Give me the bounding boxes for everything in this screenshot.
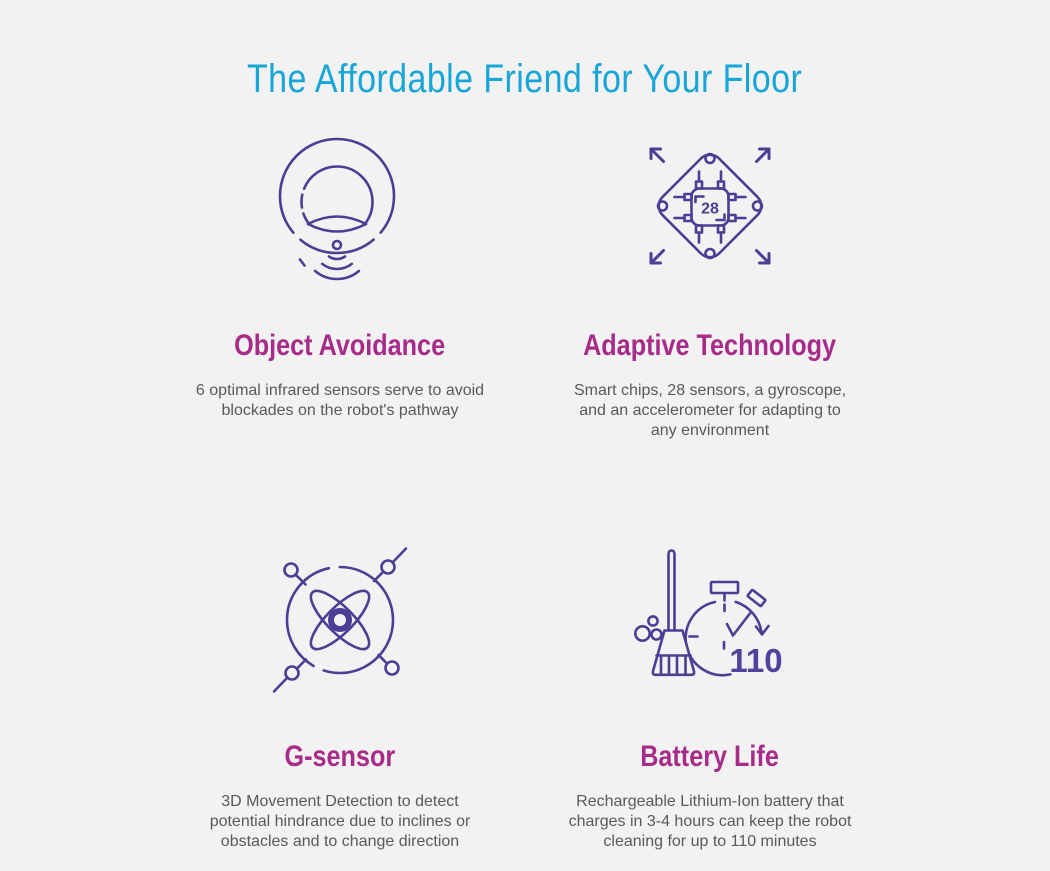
feature-description: Rechargeable Lithium-Ion battery that ch… [569, 792, 852, 852]
gyroscope-atom-icon [260, 537, 420, 699]
feature-title: Object Avoidance [235, 329, 446, 363]
feature-title: G-sensor [285, 740, 396, 774]
features-grid: Object Avoidance 6 optimal infrared sens… [155, 126, 895, 852]
battery-minutes-label: 110 [729, 642, 782, 679]
feature-description: Smart chips, 28 sensors, a gyroscope, an… [574, 381, 846, 441]
page-title: The Affordable Friend for Your Floor [0, 0, 1050, 102]
feature-description: 3D Movement Detection to detect potentia… [210, 792, 471, 852]
smart-chip-icon: 28 [634, 126, 786, 288]
robot-vacuum-sensor-icon [260, 126, 420, 288]
stopwatch-broom-icon: 110 [615, 537, 805, 699]
feature-card-adaptive-technology: 28 Adaptive Technology Smart chips, 28 s… [525, 126, 895, 441]
feature-title: Battery Life [641, 740, 780, 774]
feature-card-battery-life: 110 Battery Life Rechargeable Lithium-Io… [525, 537, 895, 852]
features-section: The Affordable Friend for Your Floor [0, 0, 1050, 852]
feature-card-object-avoidance: Object Avoidance 6 optimal infrared sens… [155, 126, 525, 441]
feature-card-g-sensor: G-sensor 3D Movement Detection to detect… [155, 537, 525, 852]
chip-sensor-count: 28 [701, 201, 719, 218]
feature-description: 6 optimal infrared sensors serve to avoi… [196, 381, 484, 421]
feature-title: Adaptive Technology [584, 329, 837, 363]
